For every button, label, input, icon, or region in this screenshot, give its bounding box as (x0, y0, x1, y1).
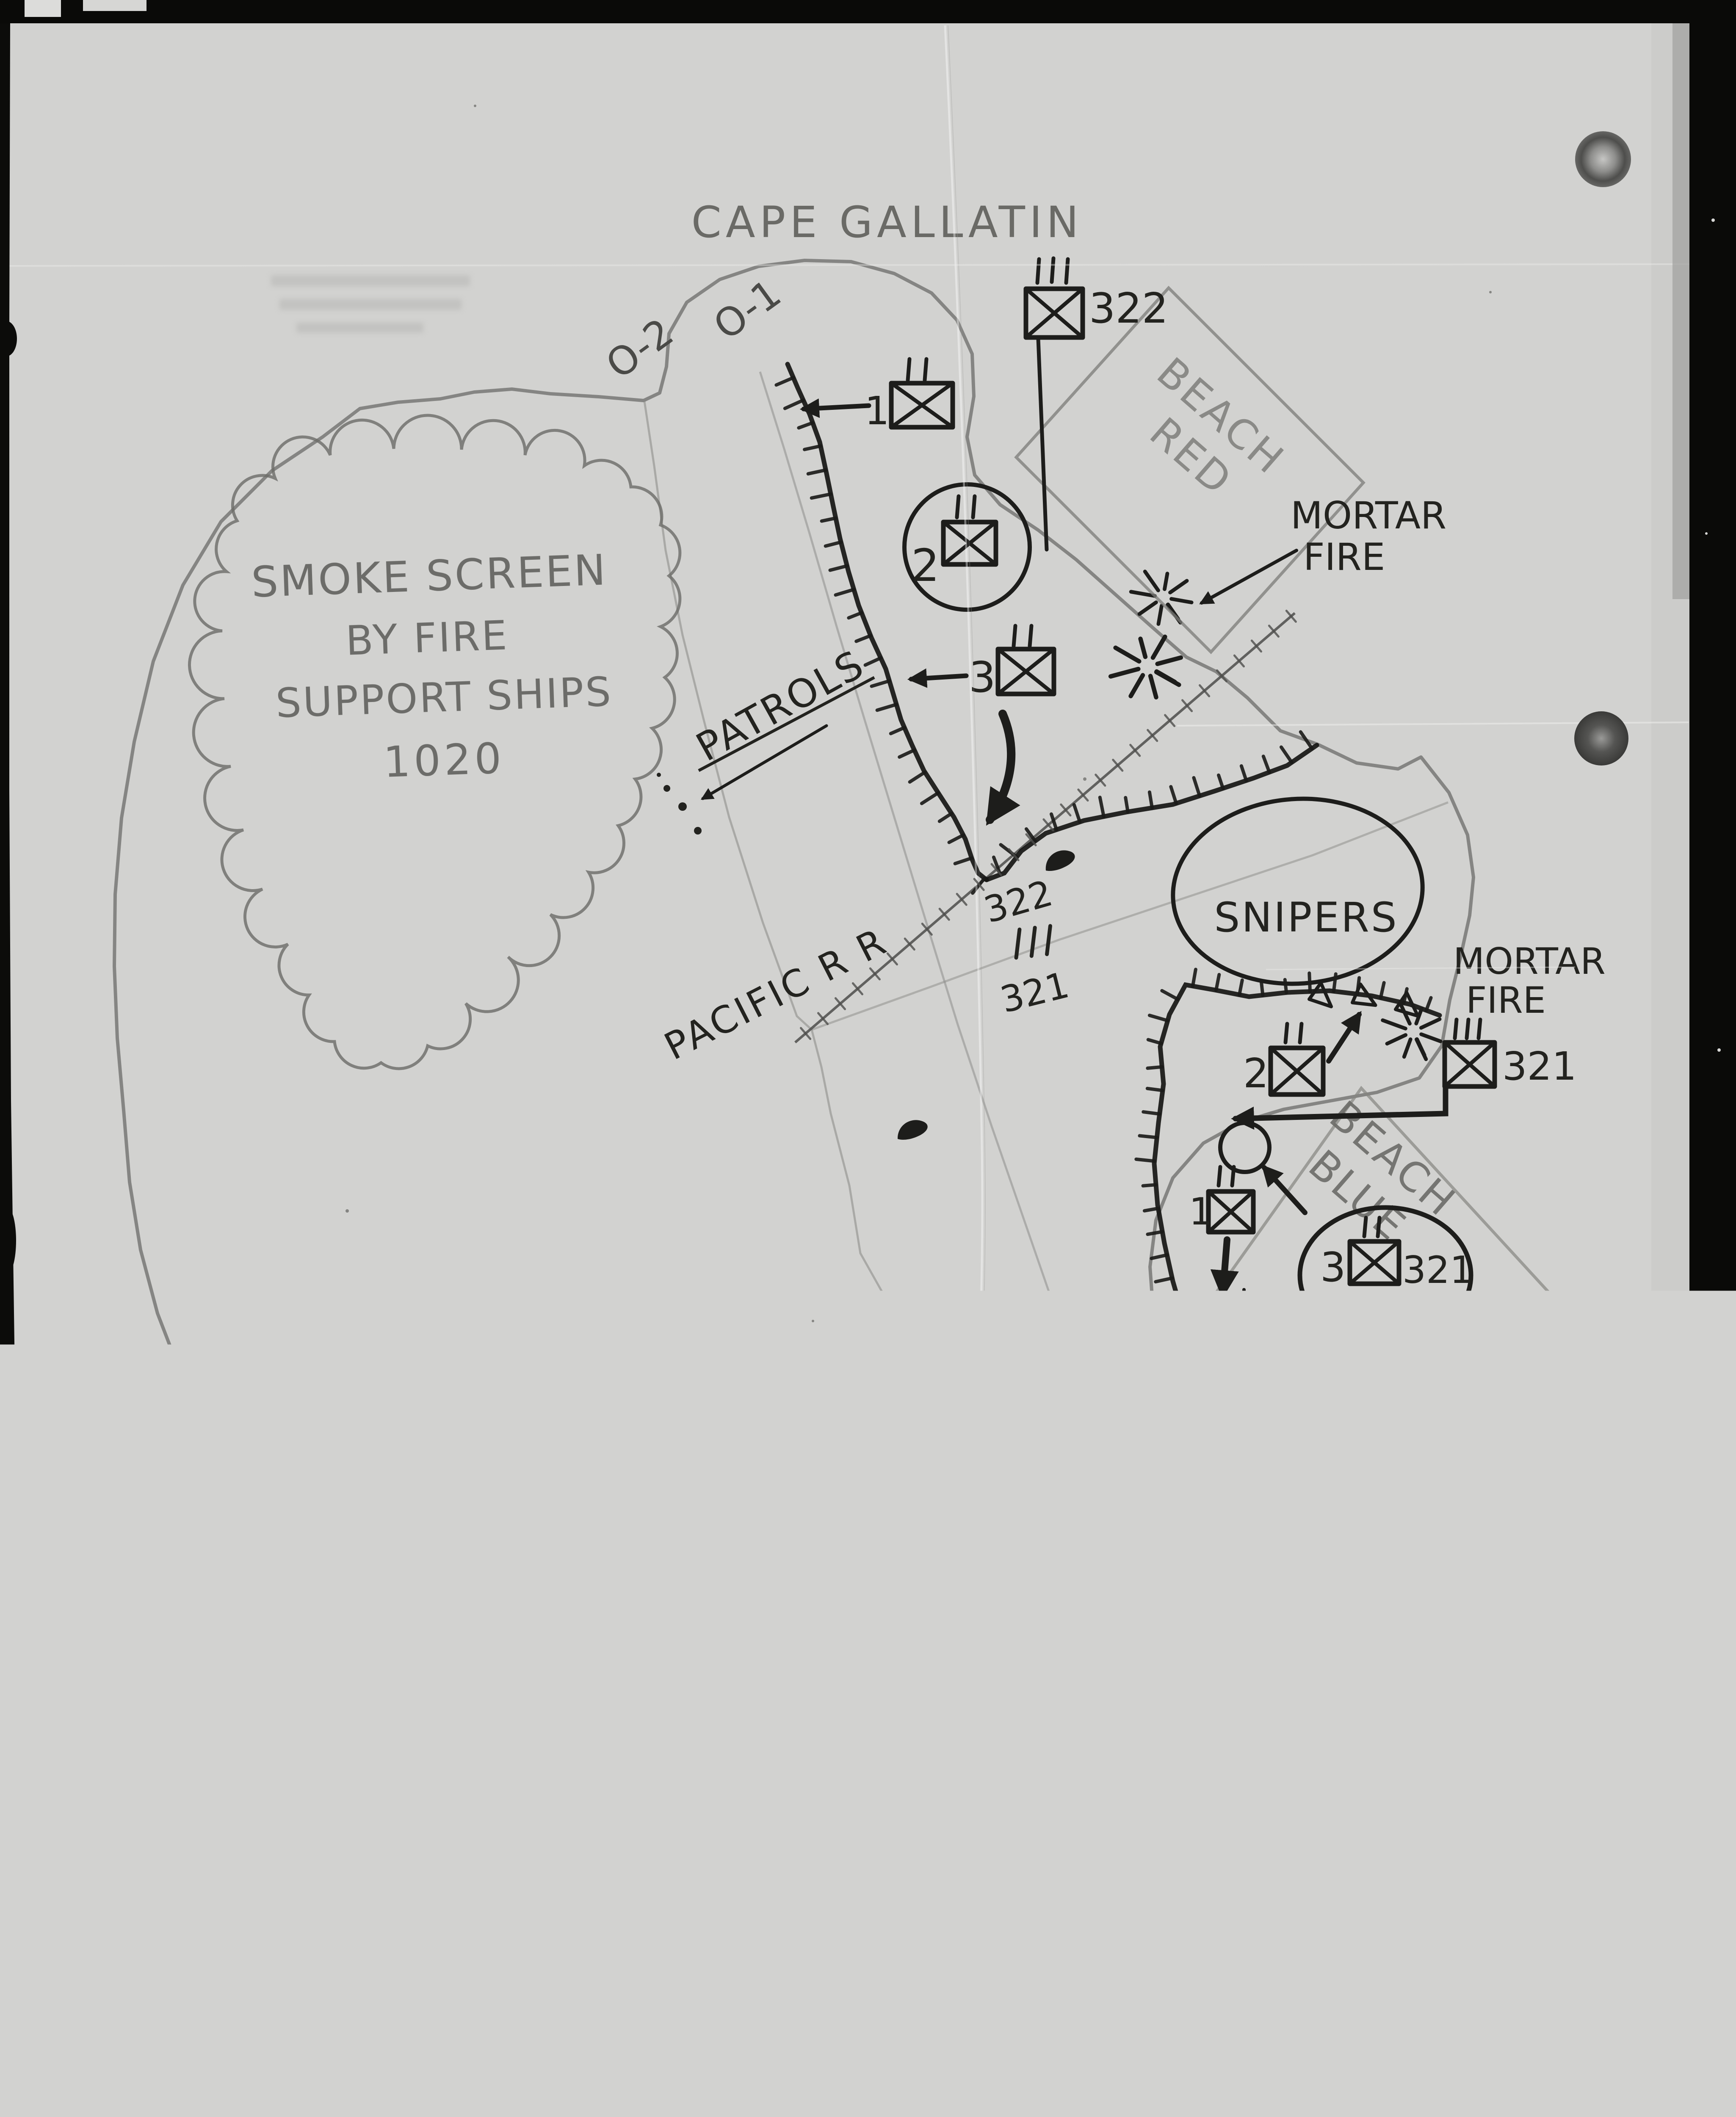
scan-edge-tear-1 (25, 0, 61, 17)
binder-hole-3 (1577, 1525, 1634, 1583)
front-line-tick (1136, 1159, 1154, 1161)
front-line-tick (1147, 1089, 1163, 1091)
beachhead-battalion-1-label: 1 (1189, 1190, 1213, 1233)
reserve-battalion-label: 3 (1320, 1244, 1346, 1291)
front-line-tick (1147, 1067, 1162, 1068)
mortar-label: MORTAR (1291, 494, 1446, 537)
reserve-regiment-label: 321 (1402, 1248, 1473, 1292)
patrol-dot (678, 802, 687, 811)
fire-label: FIRE (1466, 979, 1546, 1022)
smoke-screen-line-4: 1020 (383, 733, 506, 787)
binder-hole-2 (1574, 711, 1628, 766)
front-line-tick (1139, 1136, 1157, 1137)
battalion-2-label: 2 (911, 540, 940, 591)
reserve-divres-label: DIVRES (1322, 1294, 1465, 1338)
front-line-tick (1143, 1112, 1159, 1114)
patrol-dot (694, 827, 702, 835)
paper (9, 22, 1689, 2117)
regiment-321-label: 321 (1502, 1044, 1577, 1089)
scan-border-top (0, 0, 1736, 23)
paper-right-edge (1672, 23, 1691, 599)
battalion-1-label: 1 (865, 388, 890, 434)
phase-line-o2-bottom-label: O-2 (1021, 1498, 1092, 1546)
map-title: CAPE GALLATIN (691, 197, 1083, 248)
regiment-322-label: 322 (1089, 285, 1168, 333)
patrol-dot (657, 773, 661, 777)
mortar-label: MORTAR (1453, 940, 1606, 983)
snipers-label: SNIPERS (1214, 894, 1398, 941)
front-line-tick (1261, 981, 1263, 995)
front-line-tick (1125, 798, 1128, 812)
scanned-page: BEACH RED BEACH BLUE 322 1 (0, 0, 1736, 2117)
phase-line-o1-bottom-label: O-1 (1094, 1439, 1165, 1489)
front-line-tick (1144, 1208, 1158, 1211)
binder-hole-1 (1575, 131, 1631, 187)
attack-arrow-south-short (1223, 1240, 1227, 1293)
smoke-screen-line-2: BY FIRE (345, 612, 510, 664)
mortar-label: MORTAR (1212, 1397, 1368, 1441)
patrol-dot (663, 785, 670, 792)
north-arrow-shaft (1256, 1860, 1258, 1931)
scan-edge-tear-2 (83, 0, 147, 11)
fire-label: FIRE (1303, 535, 1385, 579)
beachhead-battalion-2-label: 2 (1243, 1050, 1269, 1097)
fire-label: FIRE (1225, 1440, 1306, 1483)
front-line-tick (1143, 1185, 1156, 1186)
scan-border-right (1689, 0, 1736, 2117)
